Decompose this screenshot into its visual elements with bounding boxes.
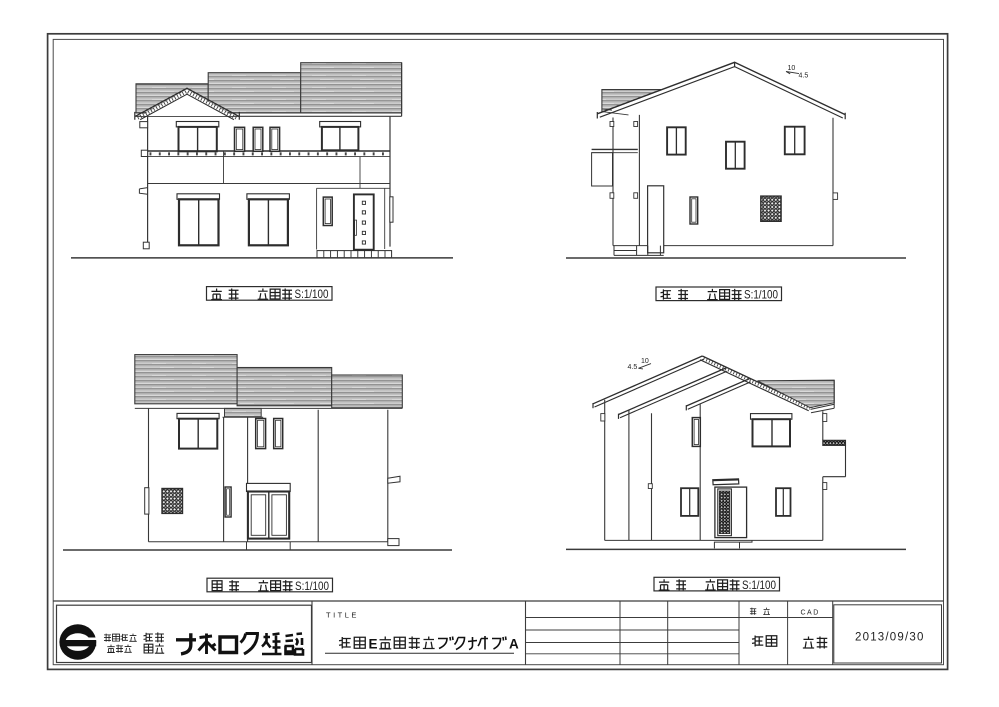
svg-text:S:1/100: S:1/100 — [744, 288, 778, 302]
svg-text:TITLE: TITLE — [326, 611, 359, 620]
svg-text:2013/09/30: 2013/09/30 — [855, 632, 925, 644]
svg-text:S:1/100: S:1/100 — [742, 578, 776, 592]
svg-text:S:1/100: S:1/100 — [295, 287, 329, 301]
svg-text:E: E — [369, 637, 378, 652]
svg-text:10: 10 — [641, 358, 649, 365]
svg-text:A: A — [509, 637, 519, 652]
svg-text:4.5: 4.5 — [799, 73, 809, 80]
svg-text:4.5: 4.5 — [628, 364, 638, 371]
svg-text:CAD: CAD — [801, 610, 820, 617]
svg-text:S:1/100: S:1/100 — [295, 579, 329, 593]
svg-text:10: 10 — [788, 65, 796, 72]
